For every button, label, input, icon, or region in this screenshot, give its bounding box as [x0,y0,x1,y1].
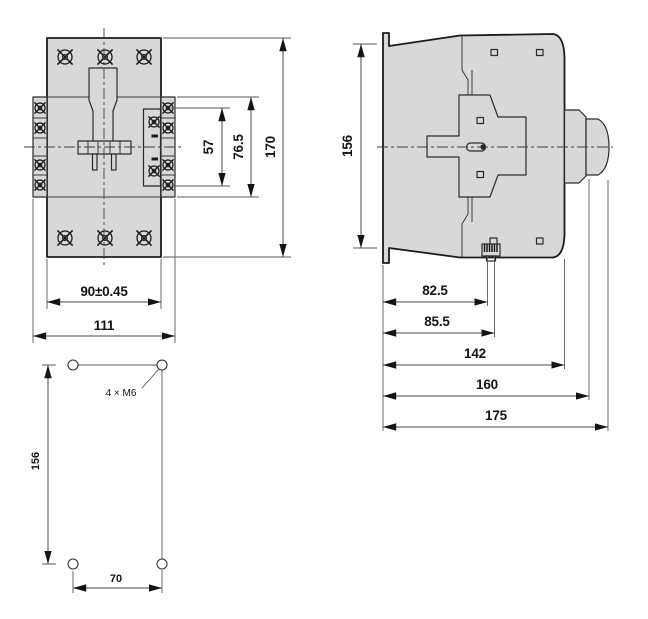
mounting-hole [68,559,78,569]
dim-label-142: 142 [464,346,486,361]
crossbar-prong [93,154,98,170]
dim-hole-vertical-pitch: 156 [30,365,56,564]
crossbar-prong [112,154,117,170]
screw-icon [162,179,173,190]
dim-label-85-5: 85.5 [424,314,450,329]
screw-icon [136,230,151,245]
dim-label-160: 160 [476,377,498,392]
dim-flange-height: 76.5 [177,97,259,197]
dimension-drawing-page: 57 76.5 170 90±0.45 111 [0,0,648,619]
dim-label-70: 70 [110,573,122,585]
screw-icon [34,159,45,170]
dim-overall-height: 170 [163,38,291,257]
screw-icon [34,102,45,113]
dim-body-depth: 142 [383,259,565,369]
terminal-mark [152,158,159,161]
screw-icon [162,122,173,133]
screw-icon [97,230,112,245]
dim-label-175: 175 [485,408,508,423]
side-view: 156 82.5 85.5 142 160 175 [340,33,613,431]
dim-label-57: 57 [201,140,216,155]
contactor-dimension-drawing: 57 76.5 170 90±0.45 111 [0,0,648,619]
dim-label-90: 90±0.45 [80,284,128,299]
dim-mounting-height: 156 [340,44,377,248]
mounting-hole [157,559,167,569]
screw-icon [148,116,159,127]
terminal-shroud [565,110,587,183]
drilling-plan: 4 × M6 156 70 [30,360,167,593]
terminal-mark [152,135,159,138]
screw-icon [162,159,173,170]
dim-label-76-5: 76.5 [231,134,246,160]
crossbar [78,141,131,154]
screw-icon [57,230,72,245]
mounting-hole [157,360,167,370]
screw-icon [97,49,112,64]
screw-icon [148,165,159,176]
dim-label-170: 170 [263,136,278,158]
hole-label: 4 × M6 [106,388,137,399]
dim-label-82-5: 82.5 [422,283,448,298]
dim-hole-horizontal-pitch: 70 [73,570,162,593]
din-rail-clip [482,244,500,261]
screw-icon [57,49,72,64]
screw-icon [136,49,151,64]
hole-size-callout: 4 × M6 [106,369,159,399]
dim-label-drill-156: 156 [30,452,42,470]
dim-din-inner: 82.5 [383,256,488,306]
dim-mounting-width: 90±0.45 [47,259,161,309]
screw-icon [34,179,45,190]
mounting-hole [68,360,78,370]
dim-label-111: 111 [94,318,115,333]
dim-label-156: 156 [340,134,355,157]
screw-icon [34,122,45,133]
front-view: 57 76.5 170 90±0.45 111 [24,28,291,343]
actuator-tab [89,68,117,143]
